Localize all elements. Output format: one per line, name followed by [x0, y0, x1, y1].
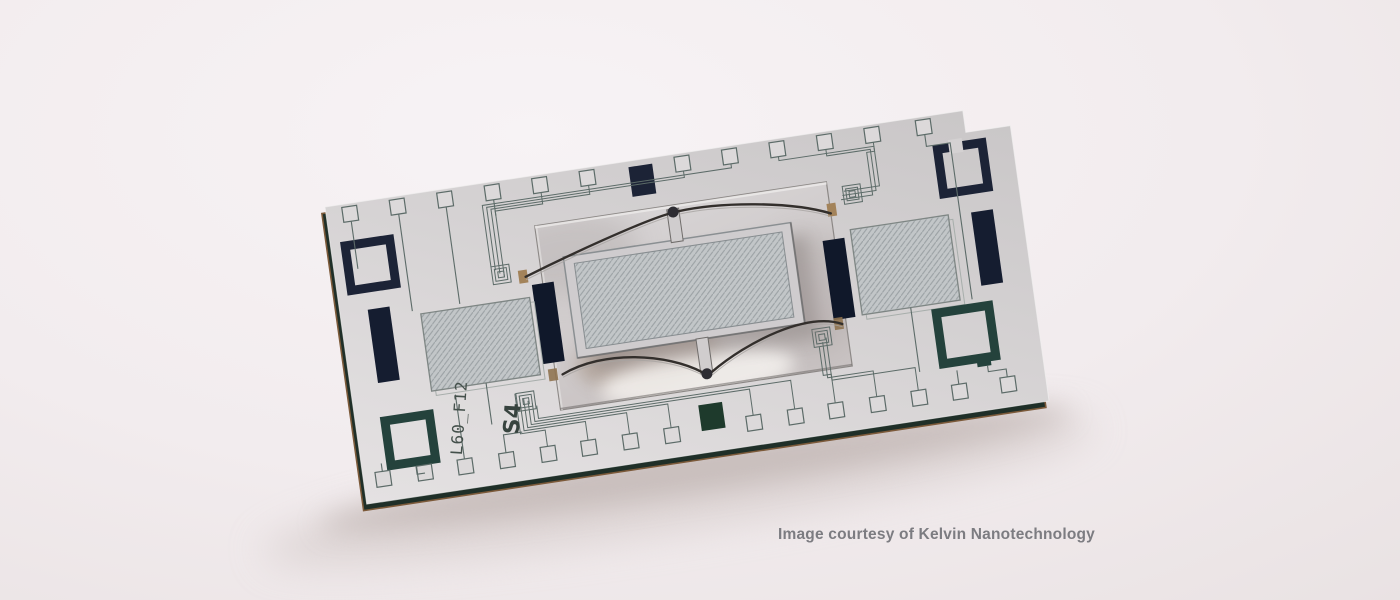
bond-pad [864, 126, 881, 143]
bond-pad [532, 177, 549, 194]
bond-pad [581, 439, 598, 456]
hatched-region [850, 215, 960, 315]
bond-pad [389, 198, 406, 215]
bond-pad [437, 191, 454, 208]
bond-pad [911, 389, 928, 406]
bond-pad [869, 396, 886, 413]
anchor-pad [826, 203, 837, 217]
bond-pad [484, 184, 501, 201]
bond-pad [769, 141, 786, 158]
bond-pad [674, 155, 691, 172]
bond-pad [579, 169, 596, 186]
bond-pad [787, 408, 804, 425]
bond-pad [915, 119, 932, 136]
bond-pad [342, 205, 359, 222]
photo-caption: Image courtesy of Kelvin Nanotechnology [778, 526, 1198, 544]
bond-pad [746, 414, 763, 431]
hatched-region [421, 297, 541, 391]
photo-canvas: L60_F12 S4 [0, 0, 1400, 600]
bond-pad [721, 148, 738, 165]
anchor-pad [548, 368, 559, 381]
bond-pad [828, 402, 845, 419]
bond-pad [816, 134, 833, 151]
bond-pad [375, 470, 392, 487]
photo-scene: L60_F12 S4 Image courtesy of Kelvin Nano… [0, 0, 1400, 600]
frame-tab [976, 353, 992, 367]
bond-pad [664, 427, 681, 444]
bond-pad [499, 452, 516, 469]
dark-pad [698, 402, 725, 431]
bond-pad [457, 458, 474, 475]
bond-pad [951, 383, 968, 400]
chip-label-variant: S4 [500, 402, 527, 435]
bond-pad [540, 445, 557, 462]
bond-pad [1000, 376, 1017, 393]
bond-pad [622, 433, 639, 450]
